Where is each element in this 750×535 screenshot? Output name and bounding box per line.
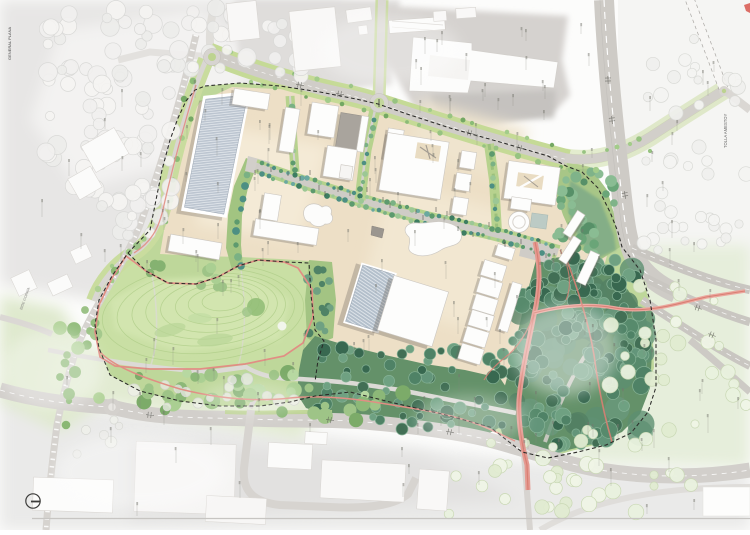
svg-text:GENERAL PLANA: GENERAL PLANA (7, 26, 12, 60)
svg-text:TOLLA AMESTOY: TOLLA AMESTOY (723, 114, 728, 148)
